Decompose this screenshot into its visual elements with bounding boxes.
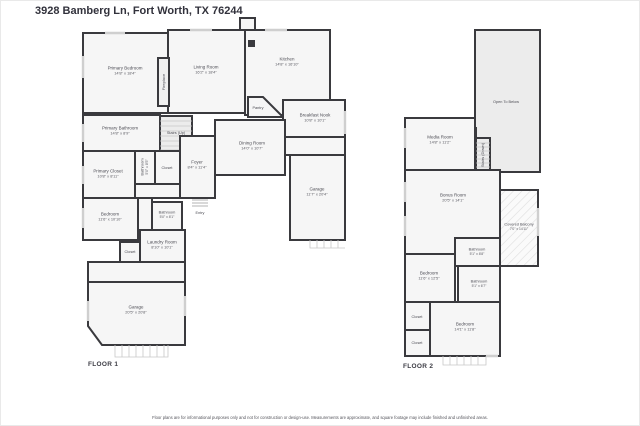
room-dims: 5'1" x 8'8" bbox=[469, 252, 486, 256]
room-label-primary-bathroom: Primary Bathroom 14'8" x 8'9" bbox=[102, 126, 138, 137]
room-label-covered-balcony: Covered Balcony 7'0" x 14'11" bbox=[504, 222, 533, 231]
room-label-dining-room: Dining Room 14'0" x 10'7" bbox=[239, 141, 265, 152]
room-label-breakfast-nook: Breakfast Nook 10'8" x 10'1" bbox=[300, 113, 331, 124]
floor2-plan: Open To Below Media Room 14'8" x 11'2" S… bbox=[398, 26, 546, 371]
room-dims: 11'6" x 12'5" bbox=[418, 276, 439, 281]
room-label-foyer: Foyer 8'4" x 11'4" bbox=[187, 160, 206, 171]
room-garage-right bbox=[290, 155, 345, 240]
room-dims: 10'8" x 8'11" bbox=[93, 174, 122, 179]
room-label-media-room: Media Room 14'8" x 11'2" bbox=[427, 135, 452, 146]
room-dims: 5'1" x 6'7" bbox=[471, 284, 488, 288]
room-dims: 20'5" x 20'8" bbox=[125, 310, 146, 315]
room-label-laundry: Laundry Room 8'10" x 10'1" bbox=[147, 240, 176, 251]
room-label-bathroom-b: Bathroom 5'1" x 6'7" bbox=[471, 279, 488, 288]
room-label-stairs-down: Stairs (Down) bbox=[480, 143, 485, 167]
room-label-primary-closet: Primary Closet 10'8" x 8'11" bbox=[93, 169, 122, 180]
room-dims: 16'2" x 18'4" bbox=[194, 70, 219, 75]
room-dims: 7'0" x 14'11" bbox=[504, 227, 533, 231]
room-dims: 14'8" x 8'9" bbox=[102, 131, 138, 136]
room-dims: 8'4" x 11'4" bbox=[187, 165, 206, 170]
room-name: Stairs (Up) bbox=[167, 131, 185, 136]
room-name: Closet bbox=[162, 166, 173, 171]
room-label-open-below: Open To Below bbox=[493, 100, 519, 105]
room-name: Closet bbox=[412, 315, 423, 320]
room-label-living-room: Living Room 16'2" x 18'4" bbox=[194, 65, 219, 76]
room-label-garage-bottom: Garage 20'5" x 20'8" bbox=[125, 305, 146, 316]
room-label-bathroom-a: Bathroom 5'1" x 8'8" bbox=[469, 247, 486, 256]
chimney-notch bbox=[240, 18, 255, 30]
room-dims: 20'5" x 14'1" bbox=[440, 198, 466, 203]
room-name: Entry bbox=[196, 211, 205, 216]
hall-lower bbox=[138, 198, 152, 230]
room-label-closet-2: Closet bbox=[125, 250, 136, 255]
room-dims: 5'0" x 8'5" bbox=[145, 158, 150, 175]
room-label-bathroom-mid: Bathroom 5'0" x 8'5" bbox=[140, 158, 150, 175]
room-dims: 14'0" x 10'7" bbox=[239, 146, 265, 151]
hall-to-garage bbox=[285, 137, 345, 155]
room-name: Closet bbox=[412, 341, 423, 346]
floor2-label: FLOOR 2 bbox=[403, 363, 433, 370]
room-dims: 14'8" x 18'4" bbox=[108, 71, 143, 76]
room-name: Stairs (Down) bbox=[480, 143, 485, 167]
room-label-stairs-up: Stairs (Up) bbox=[167, 131, 185, 136]
disclaimer-text: Floor plans are for informational purpos… bbox=[152, 415, 488, 420]
room-label-entry: Entry bbox=[196, 211, 205, 216]
room-label-garage-right: Garage 11'7" x 20'4" bbox=[306, 187, 327, 198]
garage-right-steps bbox=[310, 240, 345, 248]
room-label-pantry: Pantry bbox=[252, 106, 263, 111]
room-dims: 8'10" x 10'1" bbox=[147, 245, 176, 250]
room-label-closet-a: Closet bbox=[412, 315, 423, 320]
floor1-plan: Primary Bedroom 14'8" x 18'4" Fireplace … bbox=[80, 16, 350, 366]
room-label-fireplace: Fireplace bbox=[161, 74, 166, 90]
room-label-kitchen: Kitchen 14'8" x 16'10" bbox=[275, 57, 299, 68]
room-label-closet-1: Closet bbox=[162, 166, 173, 171]
room-name: Fireplace bbox=[161, 74, 166, 90]
room-dims: 5'0" x 8'1" bbox=[159, 215, 176, 219]
room-name: Open To Below bbox=[493, 100, 519, 105]
room-label-primary-bedroom: Primary Bedroom 14'8" x 18'4" bbox=[108, 66, 143, 77]
room-dims: 10'8" x 10'1" bbox=[300, 118, 331, 123]
room-label-closet-b: Closet bbox=[412, 341, 423, 346]
floor1-label: FLOOR 1 bbox=[88, 361, 118, 368]
room-dims: 11'6" x 10'10" bbox=[98, 217, 121, 222]
room-label-bonus-room: Bonus Room 20'5" x 14'1" bbox=[440, 193, 466, 204]
entry-steps bbox=[192, 200, 208, 206]
room-dims: 14'8" x 16'10" bbox=[275, 62, 299, 67]
room-label-bathroom-1: Bathroom 5'0" x 8'1" bbox=[159, 210, 176, 219]
room-dims: 14'8" x 11'2" bbox=[427, 140, 452, 145]
hall-to-bottom-garage bbox=[88, 262, 185, 282]
room-dims: 11'7" x 20'4" bbox=[306, 192, 327, 197]
hall-mid bbox=[135, 184, 180, 198]
room-name: Closet bbox=[125, 250, 136, 255]
floor2-bottom-steps bbox=[443, 356, 486, 365]
kitchen-post bbox=[248, 40, 255, 47]
room-name: Pantry bbox=[252, 106, 263, 111]
room-label-bedroom-b: Bedroom 14'1" x 11'8" bbox=[454, 322, 475, 333]
floorplan-page: { "title": "3928 Bamberg Ln, Fort Worth,… bbox=[0, 0, 640, 426]
garage-bottom-steps bbox=[115, 345, 168, 357]
room-label-bedroom-a: Bedroom 11'6" x 12'5" bbox=[418, 271, 439, 282]
room-label-bedroom-1: Bedroom 11'6" x 10'10" bbox=[98, 212, 121, 223]
room-dims: 14'1" x 11'8" bbox=[454, 327, 475, 332]
